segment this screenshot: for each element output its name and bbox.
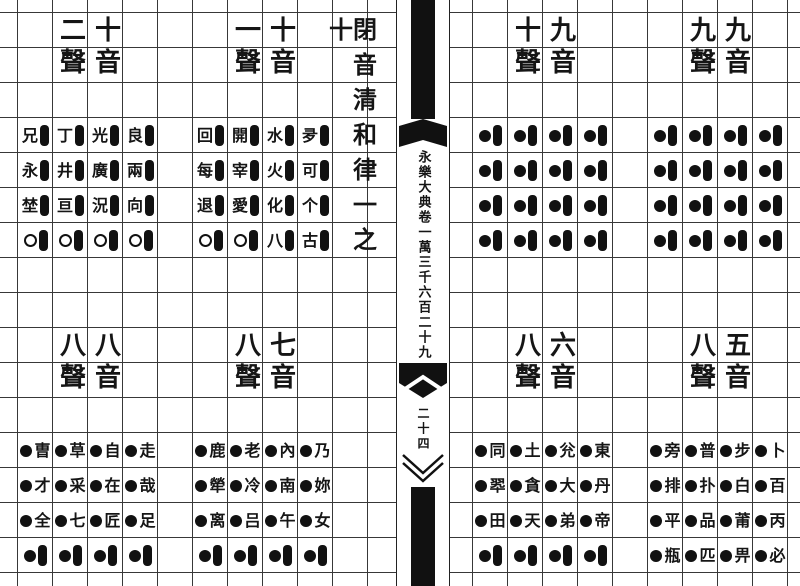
table-cell-dot-char: 瓶 <box>648 538 683 573</box>
table-cell-dot-char: 同 <box>473 433 508 468</box>
tally-bar-icon <box>249 230 258 251</box>
character-glyph: 鹿 <box>209 443 225 459</box>
tally-bar-icon <box>110 125 119 146</box>
character-glyph: 兩 <box>127 163 143 179</box>
filled-dot-icon <box>94 550 106 562</box>
cell-grid: 回開水夛每宰火可退愛化个八古 <box>193 118 333 258</box>
table-cell-dot-char: 匹 <box>683 538 718 573</box>
tally-bar-icon <box>320 160 329 181</box>
table-cell-char-bar: 兄 <box>18 118 53 153</box>
filled-dot-icon <box>125 480 137 492</box>
character-glyph: 百 <box>769 478 785 494</box>
table-cell-circle-bar <box>53 223 88 258</box>
tally-bar-icon <box>250 160 259 181</box>
character-glyph: 七 <box>69 513 85 529</box>
filled-dot-icon <box>654 235 666 247</box>
table-cell-char-bar: 埜 <box>18 188 53 223</box>
character-glyph: 老 <box>244 443 260 459</box>
table-cell-char-bar: 開 <box>228 118 263 153</box>
table-cell-dot-char: 品 <box>683 503 718 538</box>
filled-dot-icon <box>755 445 767 457</box>
table-cell-char-bar: 丁 <box>53 118 88 153</box>
yin-label: 十音 <box>93 16 119 83</box>
table-cell-dot-char: 乃 <box>298 433 333 468</box>
filled-dot-icon <box>580 445 592 457</box>
character-glyph: 天 <box>524 513 540 529</box>
table-cell-char-bar: 每 <box>193 153 228 188</box>
table-cell-dot-bar <box>508 188 543 223</box>
filled-dot-icon <box>720 550 732 562</box>
filled-dot-icon <box>720 480 732 492</box>
yin-label-column: 九音 <box>543 13 578 83</box>
filled-dot-icon <box>90 445 102 457</box>
character-glyph: 化 <box>267 198 283 214</box>
filled-dot-icon <box>300 515 312 527</box>
character-glyph: 退 <box>197 198 213 214</box>
table-cell-char-bar: 宰 <box>228 153 263 188</box>
table-cell-dot-char: 排 <box>648 468 683 503</box>
tally-bar-icon <box>145 160 154 181</box>
sheng-label: 八聲 <box>513 331 539 398</box>
yin-label-column: 九音 <box>718 13 753 83</box>
filled-dot-icon <box>584 200 596 212</box>
character-glyph: 同 <box>489 443 505 459</box>
table-group-bottom-middle: 鹿老內乃犖冷南妳离吕午女 <box>193 433 333 573</box>
character-glyph: 內 <box>279 443 295 459</box>
table-cell-dot-bar <box>508 118 543 153</box>
table-cell-char-bar: 況 <box>88 188 123 223</box>
tally-bar-icon <box>668 125 677 146</box>
filled-dot-icon <box>514 200 526 212</box>
character-glyph: 瓶 <box>664 548 680 564</box>
filled-dot-icon <box>90 515 102 527</box>
tally-bar-icon <box>109 230 118 251</box>
tally-bar-icon <box>773 125 782 146</box>
group-header-top-middle: 一聲 十音 <box>228 13 298 83</box>
character-glyph: 白 <box>734 478 750 494</box>
character-glyph: 足 <box>139 513 155 529</box>
table-cell-char-bar: 良 <box>123 118 158 153</box>
table-cell-dot-bar <box>753 223 788 258</box>
tally-bar-icon <box>528 160 537 181</box>
tally-bar-icon <box>563 195 572 216</box>
filled-dot-icon <box>650 550 662 562</box>
table-cell-char-bar: 兩 <box>123 153 158 188</box>
yin-label-column: 十音 <box>88 13 123 83</box>
tally-bar-icon <box>668 160 677 181</box>
character-glyph: 田 <box>489 513 505 529</box>
table-cell-dot-bar <box>648 223 683 258</box>
table-group-top-middle: 回開水夛每宰火可退愛化个八古 <box>193 118 333 258</box>
filled-dot-icon <box>479 200 491 212</box>
table-cell-dot-bar <box>683 153 718 188</box>
table-cell-dot-char: 离 <box>193 503 228 538</box>
tally-bar-icon <box>248 545 257 566</box>
chevron-ornament-icon <box>403 455 443 473</box>
character-glyph: 离 <box>209 513 225 529</box>
tally-bar-icon <box>143 545 152 566</box>
volume-title: 永樂大典卷一萬三千六百二十九 <box>417 150 430 360</box>
character-glyph: 亘 <box>57 198 73 214</box>
table-cell-dot-bar <box>718 223 753 258</box>
filled-dot-icon <box>90 480 102 492</box>
table-cell-dot-char: 妳 <box>298 468 333 503</box>
cell-grid: 同土兊東翆貪大丹田天弟帝 <box>473 433 613 573</box>
table-cell-char-bar: 永 <box>18 153 53 188</box>
cell-grid: 鹿老內乃犖冷南妳离吕午女 <box>193 433 333 573</box>
filled-dot-icon <box>20 515 32 527</box>
filled-dot-icon <box>24 550 36 562</box>
tally-bar-icon <box>703 195 712 216</box>
tally-bar-icon <box>285 125 294 146</box>
tally-bar-icon <box>598 195 607 216</box>
group-header-bottom-far-right: 八聲 五音 <box>683 328 753 398</box>
cell-grid: 兄丁光良永井廣兩埜亘況向 <box>18 118 158 258</box>
table-cell-dot-bar <box>263 538 298 573</box>
table-cell-dot-bar <box>543 118 578 153</box>
character-glyph: 兊 <box>559 443 575 459</box>
filled-dot-icon <box>475 515 487 527</box>
tally-bar-icon <box>668 230 677 251</box>
table-cell-dot-bar <box>753 188 788 223</box>
group-header-top-far-right: 九聲 九音 <box>683 13 753 83</box>
filled-dot-icon <box>195 480 207 492</box>
table-cell-dot-bar <box>228 538 263 573</box>
table-group-bottom-far-right: 旁普步卜排扑白百平品莆丙瓶匹畀必 <box>648 433 788 573</box>
table-cell-dot-char: 東 <box>578 433 613 468</box>
yin-label: 十音 <box>268 16 294 83</box>
filled-dot-icon <box>689 200 701 212</box>
tally-bar-icon <box>320 230 329 251</box>
filled-dot-icon <box>125 445 137 457</box>
tally-bar-icon <box>75 160 84 181</box>
table-cell-dot-bar <box>648 118 683 153</box>
filled-dot-icon <box>650 480 662 492</box>
table-cell-circle-bar <box>18 223 53 258</box>
filled-dot-icon <box>755 480 767 492</box>
empty-circle-icon <box>94 234 107 247</box>
tally-bar-icon <box>74 230 83 251</box>
table-cell-dot-char: 丹 <box>578 468 613 503</box>
character-glyph: 扑 <box>699 478 715 494</box>
table-cell-char-bar: 个 <box>298 188 333 223</box>
table-cell-dot-char: 卜 <box>753 433 788 468</box>
tally-bar-icon <box>773 195 782 216</box>
character-glyph: 翆 <box>489 478 505 494</box>
filled-dot-icon <box>514 235 526 247</box>
character-glyph: 自 <box>104 443 120 459</box>
empty-circle-icon <box>234 234 247 247</box>
table-cell-dot-bar <box>123 538 158 573</box>
tally-bar-icon <box>773 230 782 251</box>
character-glyph: 可 <box>302 163 318 179</box>
character-glyph: 貪 <box>524 478 540 494</box>
spine-bottom-bar <box>411 487 435 586</box>
filled-dot-icon <box>55 480 67 492</box>
tally-bar-icon <box>738 230 747 251</box>
filled-dot-icon <box>300 480 312 492</box>
filled-dot-icon <box>759 165 771 177</box>
character-glyph: 丁 <box>57 128 73 144</box>
tally-bar-icon <box>528 125 537 146</box>
scanned-page: 閉音清和律一之十 二聲 十音 一聲 十音 十聲 九音 九聲 九音 八聲 八音 八… <box>0 0 800 586</box>
table-cell-char-bar: 化 <box>263 188 298 223</box>
tally-bar-icon <box>773 160 782 181</box>
yin-label-column: 五音 <box>718 328 753 398</box>
filled-dot-icon <box>584 130 596 142</box>
filled-dot-icon <box>269 550 281 562</box>
table-cell-dot-char: 田 <box>473 503 508 538</box>
tally-bar-icon <box>703 125 712 146</box>
folio-number-area: 二十四 <box>397 407 449 452</box>
table-cell-dot-bar <box>683 223 718 258</box>
tally-bar-icon <box>738 125 747 146</box>
filled-dot-icon <box>650 445 662 457</box>
tally-bar-icon <box>318 545 327 566</box>
filled-dot-icon <box>584 165 596 177</box>
tally-bar-icon <box>285 230 294 251</box>
filled-dot-icon <box>20 445 32 457</box>
cell-grid <box>473 118 613 258</box>
table-cell-dot-char: 女 <box>298 503 333 538</box>
tally-bar-icon <box>215 195 224 216</box>
tally-bar-icon <box>214 230 223 251</box>
character-glyph: 匹 <box>699 548 715 564</box>
table-cell-dot-char: 普 <box>683 433 718 468</box>
empty-circle-icon <box>129 234 142 247</box>
tally-bar-icon <box>250 195 259 216</box>
table-cell-dot-char: 莆 <box>718 503 753 538</box>
table-cell-char-bar: 回 <box>193 118 228 153</box>
yin-label-column: 七音 <box>263 328 298 398</box>
filled-dot-icon <box>55 515 67 527</box>
table-cell-dot-bar <box>578 223 613 258</box>
character-glyph: 妳 <box>314 478 330 494</box>
table-cell-dot-char: 平 <box>648 503 683 538</box>
sheng-label: 十聲 <box>513 16 539 83</box>
group-header-bottom-left: 八聲 八音 <box>53 328 123 398</box>
filled-dot-icon <box>230 445 242 457</box>
filled-dot-icon <box>580 515 592 527</box>
table-cell-char-bar: 水 <box>263 118 298 153</box>
filled-dot-icon <box>654 165 666 177</box>
table-cell-dot-char: 在 <box>88 468 123 503</box>
character-glyph: 必 <box>769 548 785 564</box>
tally-bar-icon <box>528 230 537 251</box>
tally-bar-icon <box>493 195 502 216</box>
character-glyph: 个 <box>302 198 318 214</box>
character-glyph: 走 <box>139 443 155 459</box>
table-cell-dot-char: 走 <box>123 433 158 468</box>
yin-label: 七音 <box>268 331 294 398</box>
filled-dot-icon <box>59 550 71 562</box>
volume-title-area: 永樂大典卷一萬三千六百二十九 <box>397 150 449 360</box>
yin-label: 九音 <box>548 16 574 83</box>
filled-dot-icon <box>654 130 666 142</box>
sheng-label: 二聲 <box>58 16 84 83</box>
cell-grid: 旁普步卜排扑白百平品莆丙瓶匹畀必 <box>648 433 788 573</box>
fishtail-ornament-icon <box>399 119 447 147</box>
character-glyph: 全 <box>34 513 50 529</box>
character-glyph: 光 <box>92 128 108 144</box>
cell-grid <box>648 118 788 258</box>
filled-dot-icon <box>510 480 522 492</box>
table-cell-dot-bar <box>718 153 753 188</box>
table-cell-dot-bar <box>753 153 788 188</box>
table-cell-dot-char: 大 <box>543 468 578 503</box>
table-cell-dot-bar <box>578 188 613 223</box>
tally-bar-icon <box>598 160 607 181</box>
filled-dot-icon <box>230 480 242 492</box>
folio-number: 二十四 <box>417 407 429 452</box>
filled-dot-icon <box>545 445 557 457</box>
filled-dot-icon <box>125 515 137 527</box>
table-cell-dot-char: 犖 <box>193 468 228 503</box>
sheng-label-column: 一聲 <box>228 13 263 83</box>
filled-dot-icon <box>20 480 32 492</box>
filled-dot-icon <box>234 550 246 562</box>
table-cell-dot-bar <box>718 188 753 223</box>
tally-bar-icon <box>563 545 572 566</box>
character-glyph: 帝 <box>594 513 610 529</box>
sheng-label-column: 九聲 <box>683 13 718 83</box>
table-cell-dot-char: 曺 <box>18 433 53 468</box>
filled-dot-icon <box>584 235 596 247</box>
character-glyph: 曺 <box>34 443 50 459</box>
table-cell-dot-bar <box>298 538 333 573</box>
table-cell-dot-char: 弟 <box>543 503 578 538</box>
filled-dot-icon <box>230 515 242 527</box>
filled-dot-icon <box>549 200 561 212</box>
filled-dot-icon <box>654 200 666 212</box>
table-cell-dot-bar <box>473 538 508 573</box>
character-glyph: 午 <box>279 513 295 529</box>
filled-dot-icon <box>689 235 701 247</box>
tally-bar-icon <box>320 195 329 216</box>
character-glyph: 兄 <box>22 128 38 144</box>
filled-dot-icon <box>755 550 767 562</box>
sheng-label: 八聲 <box>688 331 714 398</box>
tally-bar-icon <box>145 195 154 216</box>
filled-dot-icon <box>584 550 596 562</box>
table-cell-dot-bar <box>578 538 613 573</box>
character-glyph: 乃 <box>314 443 330 459</box>
filled-dot-icon <box>759 130 771 142</box>
character-glyph: 古 <box>302 233 318 249</box>
tally-bar-icon <box>563 125 572 146</box>
table-cell-dot-bar <box>543 188 578 223</box>
filled-dot-icon <box>650 515 662 527</box>
tally-bar-icon <box>75 125 84 146</box>
table-cell-dot-char: 土 <box>508 433 543 468</box>
filled-dot-icon <box>300 445 312 457</box>
table-cell-circle-bar <box>193 223 228 258</box>
table-cell-dot-bar <box>648 188 683 223</box>
filled-dot-icon <box>195 515 207 527</box>
filled-dot-icon <box>479 130 491 142</box>
character-glyph: 平 <box>664 513 680 529</box>
filled-dot-icon <box>685 445 697 457</box>
character-glyph: 排 <box>664 478 680 494</box>
table-cell-char-bar: 向 <box>123 188 158 223</box>
filled-dot-icon <box>720 515 732 527</box>
empty-circle-icon <box>24 234 37 247</box>
character-glyph: 采 <box>69 478 85 494</box>
table-cell-dot-char: 畀 <box>718 538 753 573</box>
character-glyph: 永 <box>22 163 38 179</box>
character-glyph: 良 <box>127 128 143 144</box>
table-cell-dot-bar <box>473 223 508 258</box>
tally-bar-icon <box>493 160 502 181</box>
character-glyph: 莆 <box>734 513 750 529</box>
filled-dot-icon <box>549 130 561 142</box>
book-spine-column: 永樂大典卷一萬三千六百二十九 二十四 <box>396 0 450 586</box>
filled-dot-icon <box>685 515 697 527</box>
tally-bar-icon <box>40 195 49 216</box>
tally-bar-icon <box>738 195 747 216</box>
table-cell-dot-char: 冷 <box>228 468 263 503</box>
table-cell-dot-bar <box>473 153 508 188</box>
tally-bar-icon <box>598 230 607 251</box>
table-group-top-left: 兄丁光良永井廣兩埜亘況向 <box>18 118 158 258</box>
sheng-label-column: 八聲 <box>683 328 718 398</box>
character-glyph: 匠 <box>104 513 120 529</box>
character-glyph: 女 <box>314 513 330 529</box>
sheng-label-column: 二聲 <box>53 13 88 83</box>
tally-bar-icon <box>110 160 119 181</box>
tally-bar-icon <box>493 545 502 566</box>
filled-dot-icon <box>724 165 736 177</box>
tally-bar-icon <box>668 195 677 216</box>
filled-dot-icon <box>514 130 526 142</box>
table-cell-dot-bar <box>473 188 508 223</box>
table-cell-dot-char: 步 <box>718 433 753 468</box>
character-glyph: 火 <box>267 163 283 179</box>
character-glyph: 廣 <box>92 163 108 179</box>
tally-bar-icon <box>250 125 259 146</box>
table-cell-char-bar: 古 <box>298 223 333 258</box>
table-cell-circle-bar <box>123 223 158 258</box>
table-cell-dot-bar <box>508 538 543 573</box>
table-cell-dot-bar <box>18 538 53 573</box>
tally-bar-icon <box>40 125 49 146</box>
table-cell-char-bar: 亘 <box>53 188 88 223</box>
table-cell-char-bar: 可 <box>298 153 333 188</box>
filled-dot-icon <box>479 165 491 177</box>
table-cell-char-bar: 八 <box>263 223 298 258</box>
spine-top-bar <box>411 0 435 119</box>
character-glyph: 況 <box>92 198 108 214</box>
table-cell-dot-bar <box>508 223 543 258</box>
tally-bar-icon <box>528 195 537 216</box>
table-cell-char-bar: 退 <box>193 188 228 223</box>
table-cell-dot-bar <box>88 538 123 573</box>
group-header-top-right: 十聲 九音 <box>508 13 578 83</box>
table-cell-dot-char: 全 <box>18 503 53 538</box>
sheng-label-column: 八聲 <box>508 328 543 398</box>
character-glyph: 南 <box>279 478 295 494</box>
table-cell-dot-char: 南 <box>263 468 298 503</box>
table-cell-dot-bar <box>543 153 578 188</box>
table-cell-char-bar: 火 <box>263 153 298 188</box>
filled-dot-icon <box>514 165 526 177</box>
table-cell-dot-char: 才 <box>18 468 53 503</box>
table-cell-dot-char: 扑 <box>683 468 718 503</box>
table-cell-dot-char: 鹿 <box>193 433 228 468</box>
character-glyph: 吕 <box>244 513 260 529</box>
table-cell-dot-char: 采 <box>53 468 88 503</box>
character-glyph: 愛 <box>232 198 248 214</box>
